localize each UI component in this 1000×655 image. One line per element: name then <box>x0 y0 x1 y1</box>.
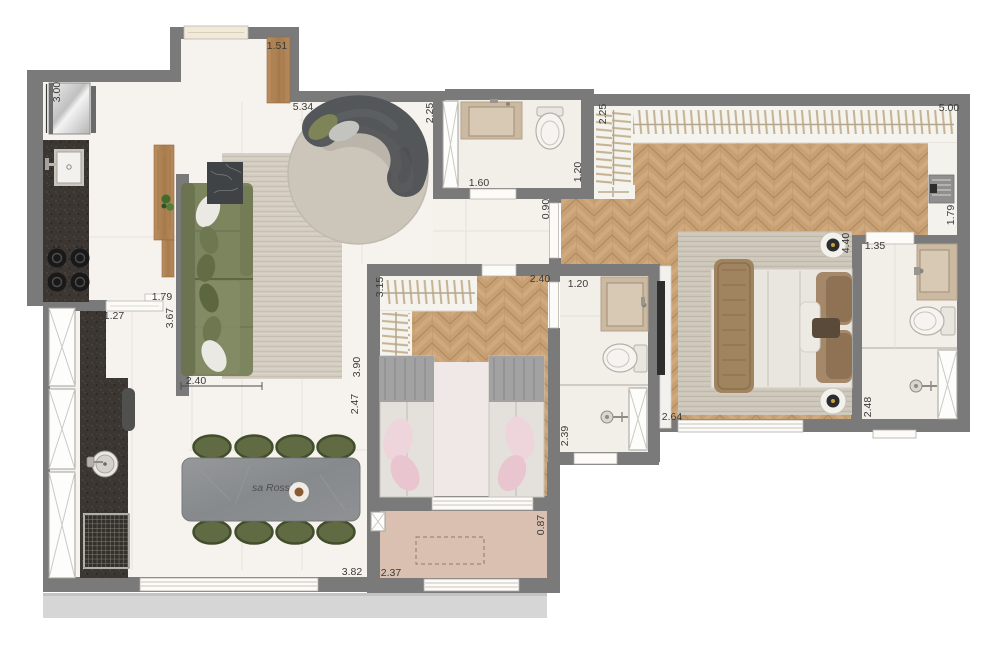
svg-text:1.60: 1.60 <box>469 177 490 189</box>
svg-text:3.82: 3.82 <box>342 566 363 578</box>
svg-text:2.40: 2.40 <box>186 375 207 387</box>
svg-text:1.27: 1.27 <box>104 310 125 322</box>
svg-text:0.87: 0.87 <box>535 515 547 536</box>
svg-text:1.79: 1.79 <box>945 205 957 226</box>
svg-text:2.39: 2.39 <box>559 426 571 447</box>
svg-text:4.40: 4.40 <box>840 233 852 254</box>
svg-text:1.51: 1.51 <box>267 40 288 52</box>
svg-text:2.25: 2.25 <box>424 103 436 124</box>
svg-text:1.79: 1.79 <box>152 291 173 303</box>
svg-text:2.64: 2.64 <box>662 411 683 423</box>
svg-text:1.35: 1.35 <box>865 240 886 252</box>
svg-text:5.34: 5.34 <box>293 101 314 113</box>
svg-text:0.90: 0.90 <box>540 199 552 220</box>
svg-text:1.20: 1.20 <box>568 278 589 290</box>
svg-text:5.00: 5.00 <box>939 102 960 114</box>
svg-text:3.90: 3.90 <box>351 357 363 378</box>
svg-text:3.00: 3.00 <box>51 82 63 103</box>
svg-text:3.15: 3.15 <box>374 277 386 298</box>
svg-text:2.48: 2.48 <box>862 397 874 418</box>
svg-text:3.67: 3.67 <box>164 308 176 329</box>
svg-text:2.37: 2.37 <box>381 567 402 579</box>
svg-text:2.25: 2.25 <box>597 104 609 125</box>
svg-text:1.20: 1.20 <box>572 162 584 183</box>
svg-text:2.47: 2.47 <box>349 394 361 415</box>
svg-text:2.40: 2.40 <box>530 273 551 285</box>
